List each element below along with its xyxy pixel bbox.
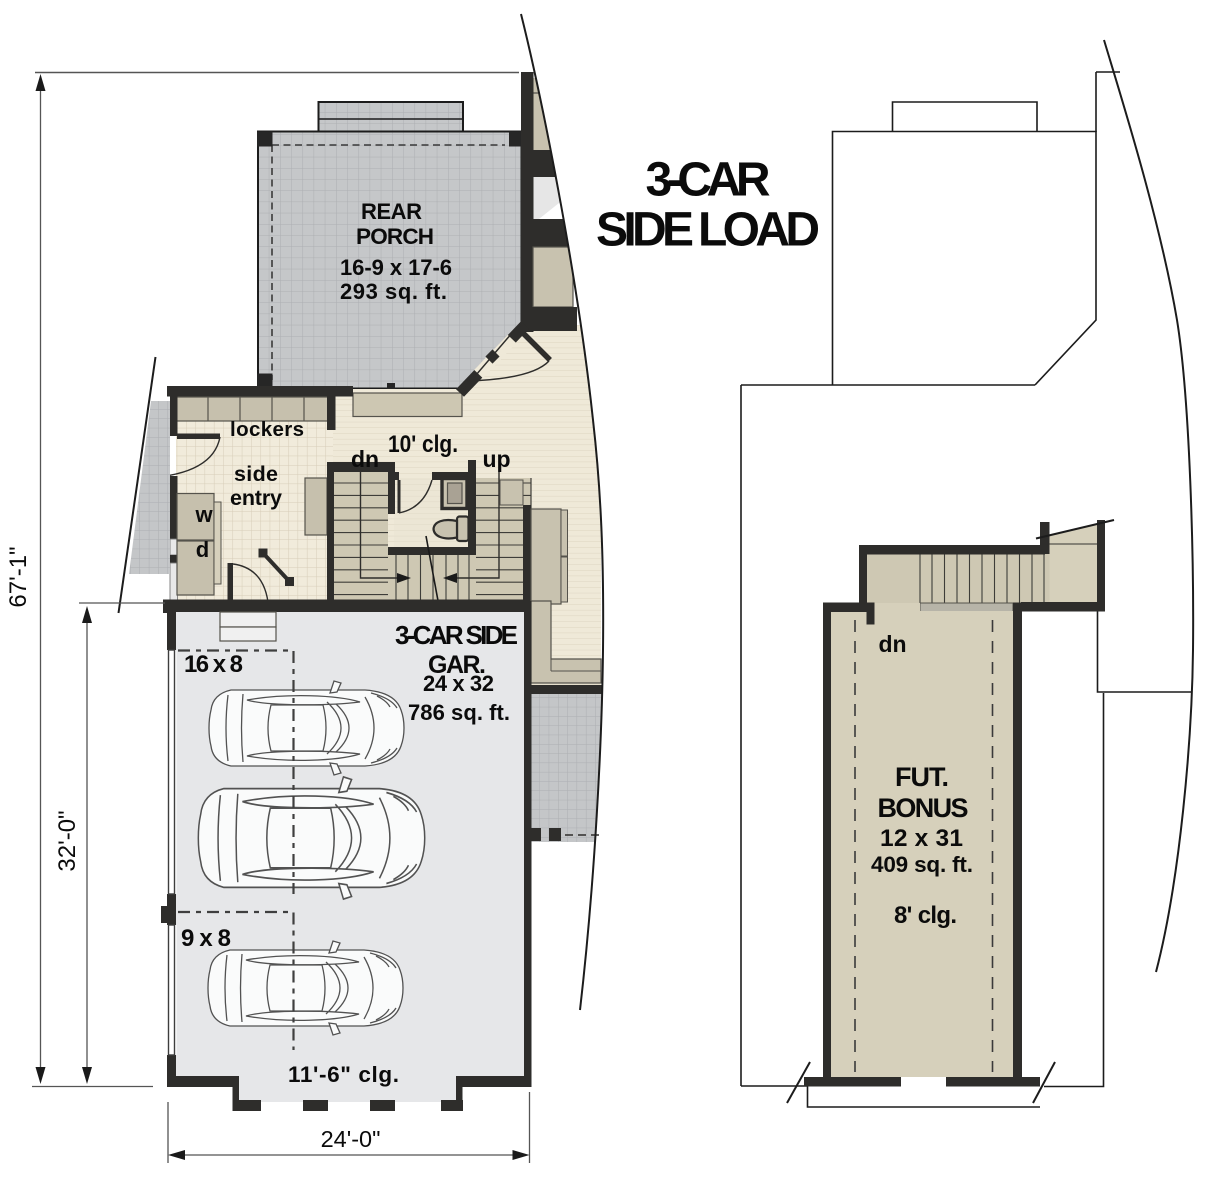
svg-text:293 sq. ft.: 293 sq. ft. bbox=[340, 279, 447, 304]
svg-text:PORCH: PORCH bbox=[356, 224, 434, 249]
svg-text:16-9 x 17-6: 16-9 x 17-6 bbox=[340, 255, 452, 280]
svg-text:3-CAR SIDE: 3-CAR SIDE bbox=[395, 620, 518, 650]
svg-text:16 x 8: 16 x 8 bbox=[184, 651, 243, 678]
svg-text:67'-1": 67'-1" bbox=[5, 546, 32, 607]
svg-text:side: side bbox=[234, 462, 278, 486]
svg-text:786 sq. ft.: 786 sq. ft. bbox=[408, 700, 510, 725]
svg-text:12 x 31: 12 x 31 bbox=[880, 825, 963, 852]
svg-text:FUT.: FUT. bbox=[895, 762, 949, 792]
svg-text:3-CAR: 3-CAR bbox=[646, 154, 771, 207]
svg-text:up: up bbox=[482, 446, 510, 472]
svg-text:lockers: lockers bbox=[230, 418, 304, 441]
svg-text:32'-0": 32'-0" bbox=[54, 810, 81, 871]
svg-text:10' clg.: 10' clg. bbox=[388, 431, 458, 458]
svg-text:11'-6" clg.: 11'-6" clg. bbox=[288, 1062, 399, 1087]
svg-text:REAR: REAR bbox=[361, 199, 422, 224]
svg-text:24 x 32: 24 x 32 bbox=[423, 671, 494, 696]
svg-text:d: d bbox=[196, 537, 209, 562]
svg-text:409 sq. ft.: 409 sq. ft. bbox=[871, 852, 973, 877]
svg-text:w: w bbox=[194, 502, 213, 527]
svg-text:24'-0": 24'-0" bbox=[321, 1126, 381, 1152]
svg-text:BONUS: BONUS bbox=[878, 793, 969, 823]
svg-text:8' clg.: 8' clg. bbox=[894, 902, 957, 929]
svg-text:dn: dn bbox=[878, 631, 906, 657]
svg-text:SIDE LOAD: SIDE LOAD bbox=[596, 204, 820, 257]
svg-text:entry: entry bbox=[230, 486, 282, 510]
svg-text:9 x 8: 9 x 8 bbox=[181, 925, 231, 952]
svg-text:dn: dn bbox=[351, 446, 379, 472]
